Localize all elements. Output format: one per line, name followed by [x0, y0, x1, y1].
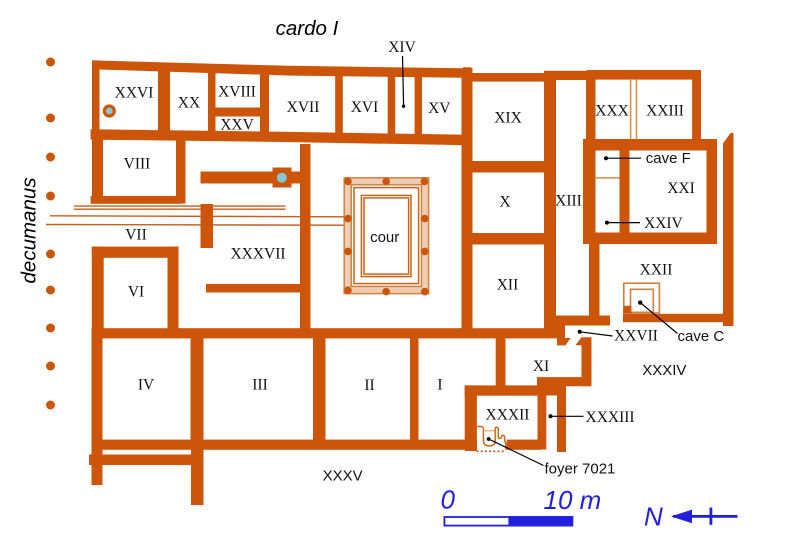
svg-text:cour: cour: [370, 229, 399, 246]
svg-text:XV: XV: [428, 100, 451, 117]
svg-text:IV: IV: [138, 376, 155, 393]
svg-text:XXXIV: XXXIV: [642, 362, 686, 379]
svg-text:XIX: XIX: [494, 109, 522, 126]
svg-text:XXVII: XXVII: [614, 328, 658, 345]
svg-text:decumanus: decumanus: [18, 178, 41, 284]
svg-text:VI: VI: [128, 283, 144, 300]
svg-text:XXXV: XXXV: [323, 468, 363, 485]
svg-text:XVI: XVI: [351, 99, 379, 116]
svg-text:II: II: [364, 377, 374, 394]
svg-text:XXVI: XXVI: [115, 85, 154, 102]
svg-text:XXIII: XXIII: [646, 103, 684, 120]
svg-text:cave F: cave F: [646, 150, 691, 167]
svg-text:10 m: 10 m: [544, 485, 602, 515]
svg-text:0: 0: [441, 485, 456, 515]
svg-text:XX: XX: [178, 95, 200, 112]
svg-text:foyer 7021: foyer 7021: [545, 461, 616, 478]
svg-text:XI: XI: [533, 358, 549, 375]
svg-text:I: I: [437, 376, 442, 393]
svg-text:XVII: XVII: [287, 99, 320, 116]
svg-text:VII: VII: [125, 226, 147, 243]
svg-text:XXI: XXI: [667, 180, 695, 197]
svg-text:XXV: XXV: [220, 116, 254, 133]
svg-text:XXXVII: XXXVII: [230, 245, 285, 262]
svg-text:III: III: [252, 376, 268, 393]
svg-text:XXXII: XXXII: [486, 406, 530, 423]
svg-text:XXIV: XXIV: [644, 215, 684, 232]
svg-text:XXX: XXX: [595, 103, 629, 120]
svg-text:XXXIII: XXXIII: [586, 409, 635, 426]
svg-text:cardo I: cardo I: [276, 17, 339, 40]
svg-text:X: X: [499, 193, 510, 210]
svg-text:N: N: [644, 501, 663, 531]
svg-text:XIV: XIV: [388, 39, 416, 56]
svg-text:VIII: VIII: [124, 155, 151, 172]
svg-text:XVIII: XVIII: [218, 83, 256, 100]
svg-text:cave C: cave C: [678, 328, 725, 345]
svg-text:XXII: XXII: [640, 262, 673, 279]
svg-text:XII: XII: [497, 276, 519, 293]
svg-text:XIII: XIII: [555, 192, 582, 209]
